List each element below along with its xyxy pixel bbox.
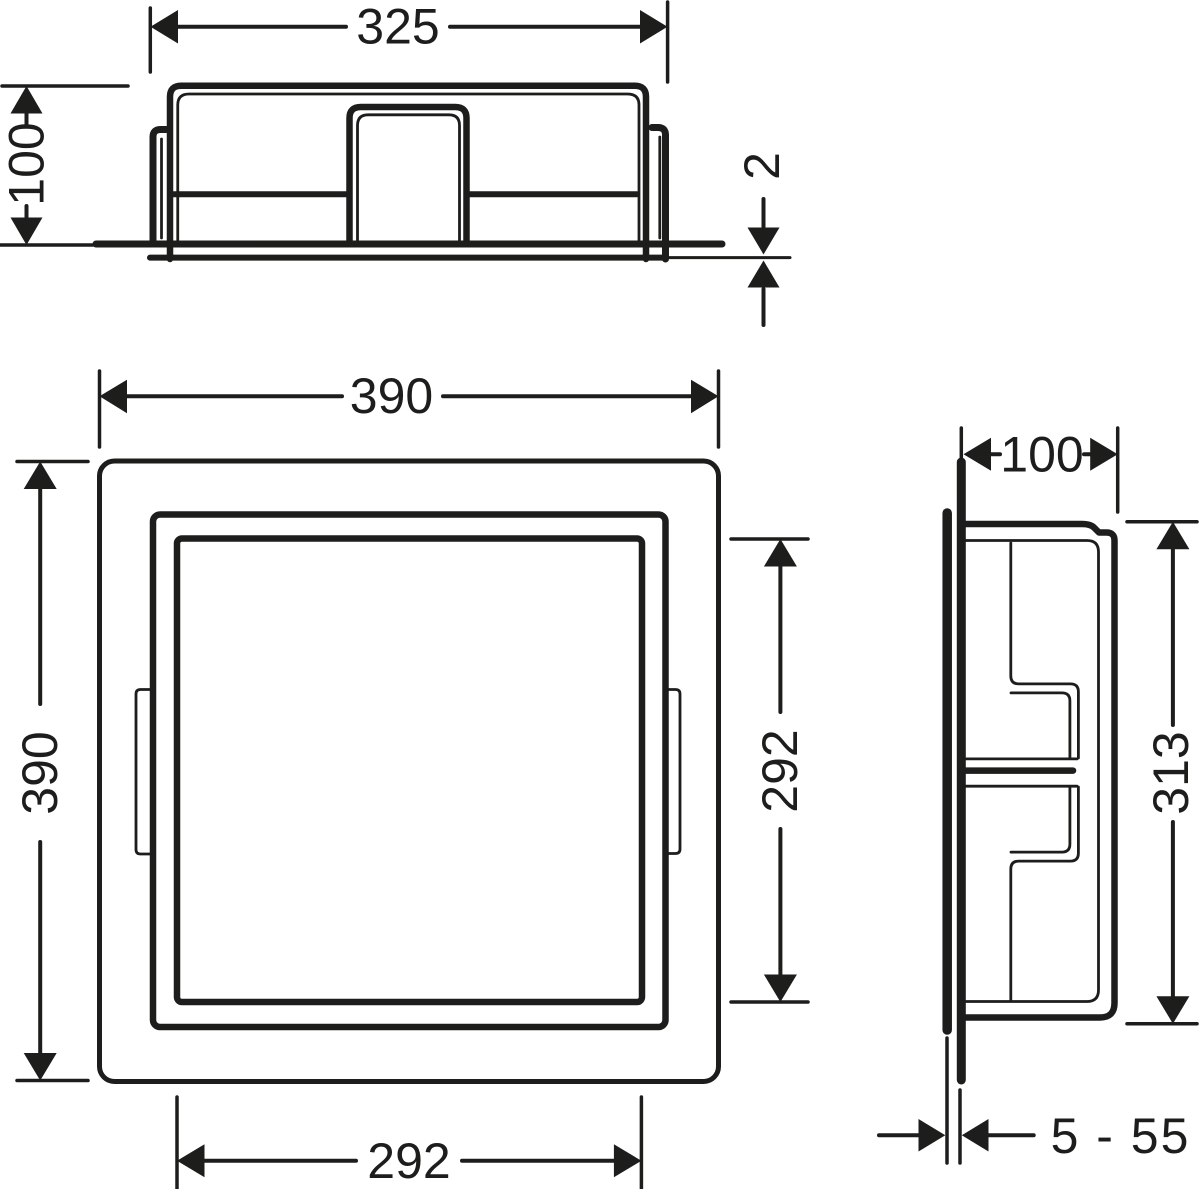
svg-text:325: 325	[356, 0, 439, 55]
svg-text:390: 390	[350, 368, 433, 424]
svg-text:292: 292	[752, 729, 808, 812]
svg-text:2: 2	[734, 152, 790, 180]
svg-text:100: 100	[0, 122, 55, 205]
svg-text:390: 390	[12, 731, 68, 814]
svg-text:100: 100	[1000, 427, 1083, 483]
svg-text:5 - 55: 5 - 55	[1051, 1108, 1191, 1164]
svg-text:292: 292	[367, 1133, 450, 1189]
svg-text:313: 313	[1143, 731, 1199, 814]
